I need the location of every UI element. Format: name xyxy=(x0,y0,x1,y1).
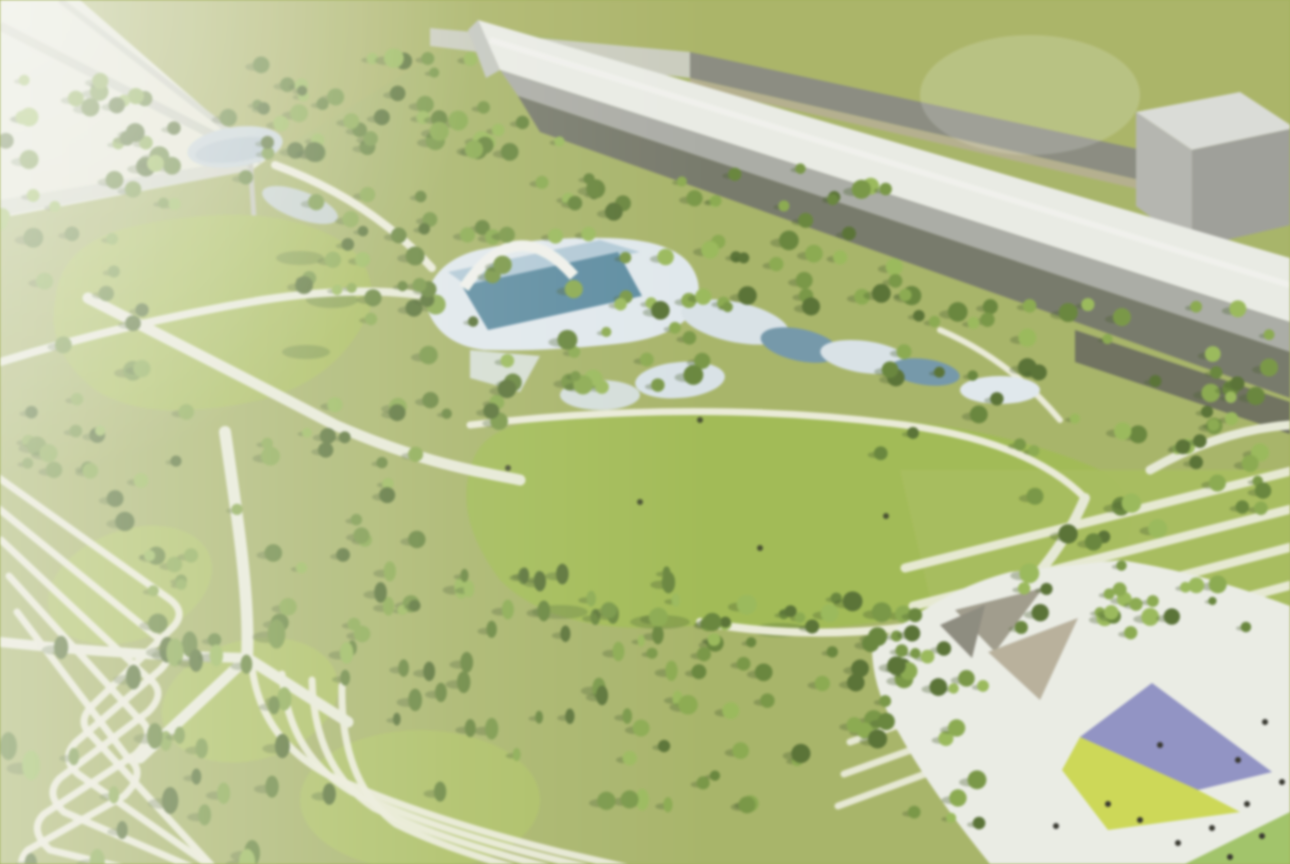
scene-svg xyxy=(0,0,1290,864)
tint-overlay xyxy=(0,0,1290,864)
park-rendering xyxy=(0,0,1290,864)
